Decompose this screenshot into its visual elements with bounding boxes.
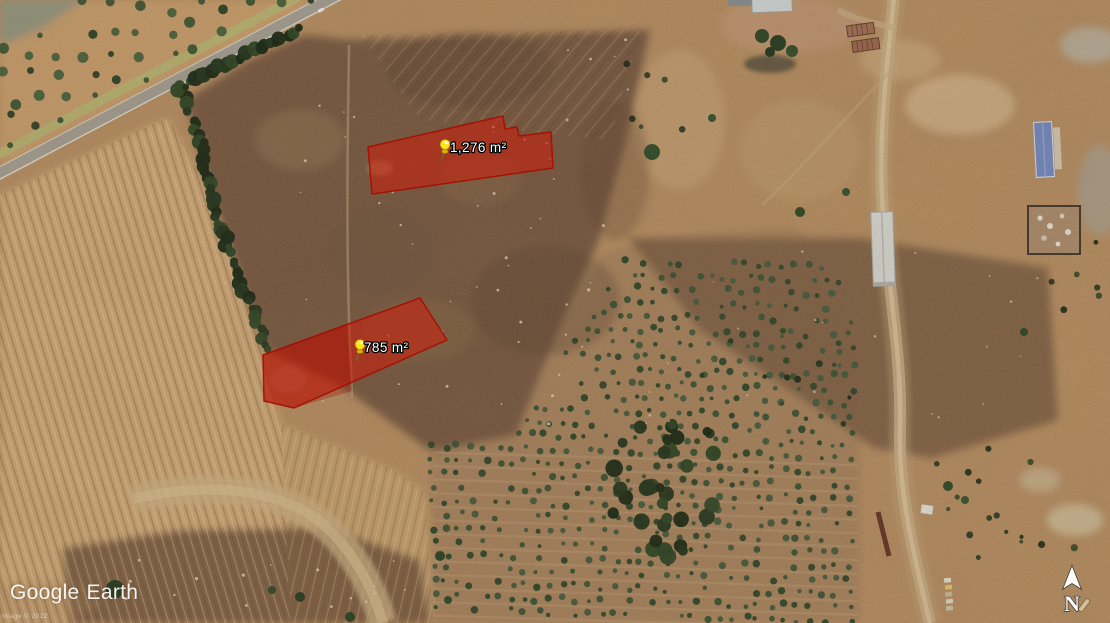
area-label-2: 785 m²: [364, 340, 409, 355]
watermark-google: Google: [10, 581, 80, 604]
area-label-1: 1,276 m²: [450, 140, 507, 155]
north-label: N: [1064, 591, 1080, 616]
imagery-attribution: Image © 2022: [2, 613, 48, 620]
satellite-canvas: 1,276 m² 785 m² N: [0, 0, 1110, 623]
watermark-earth: Earth: [87, 581, 139, 604]
google-earth-watermark: GoogleEarth: [10, 582, 138, 604]
satellite-imagery: [0, 0, 1110, 623]
google-earth-map-view[interactable]: 1,276 m² 785 m² N GoogleEarth Image © 20…: [0, 0, 1110, 623]
